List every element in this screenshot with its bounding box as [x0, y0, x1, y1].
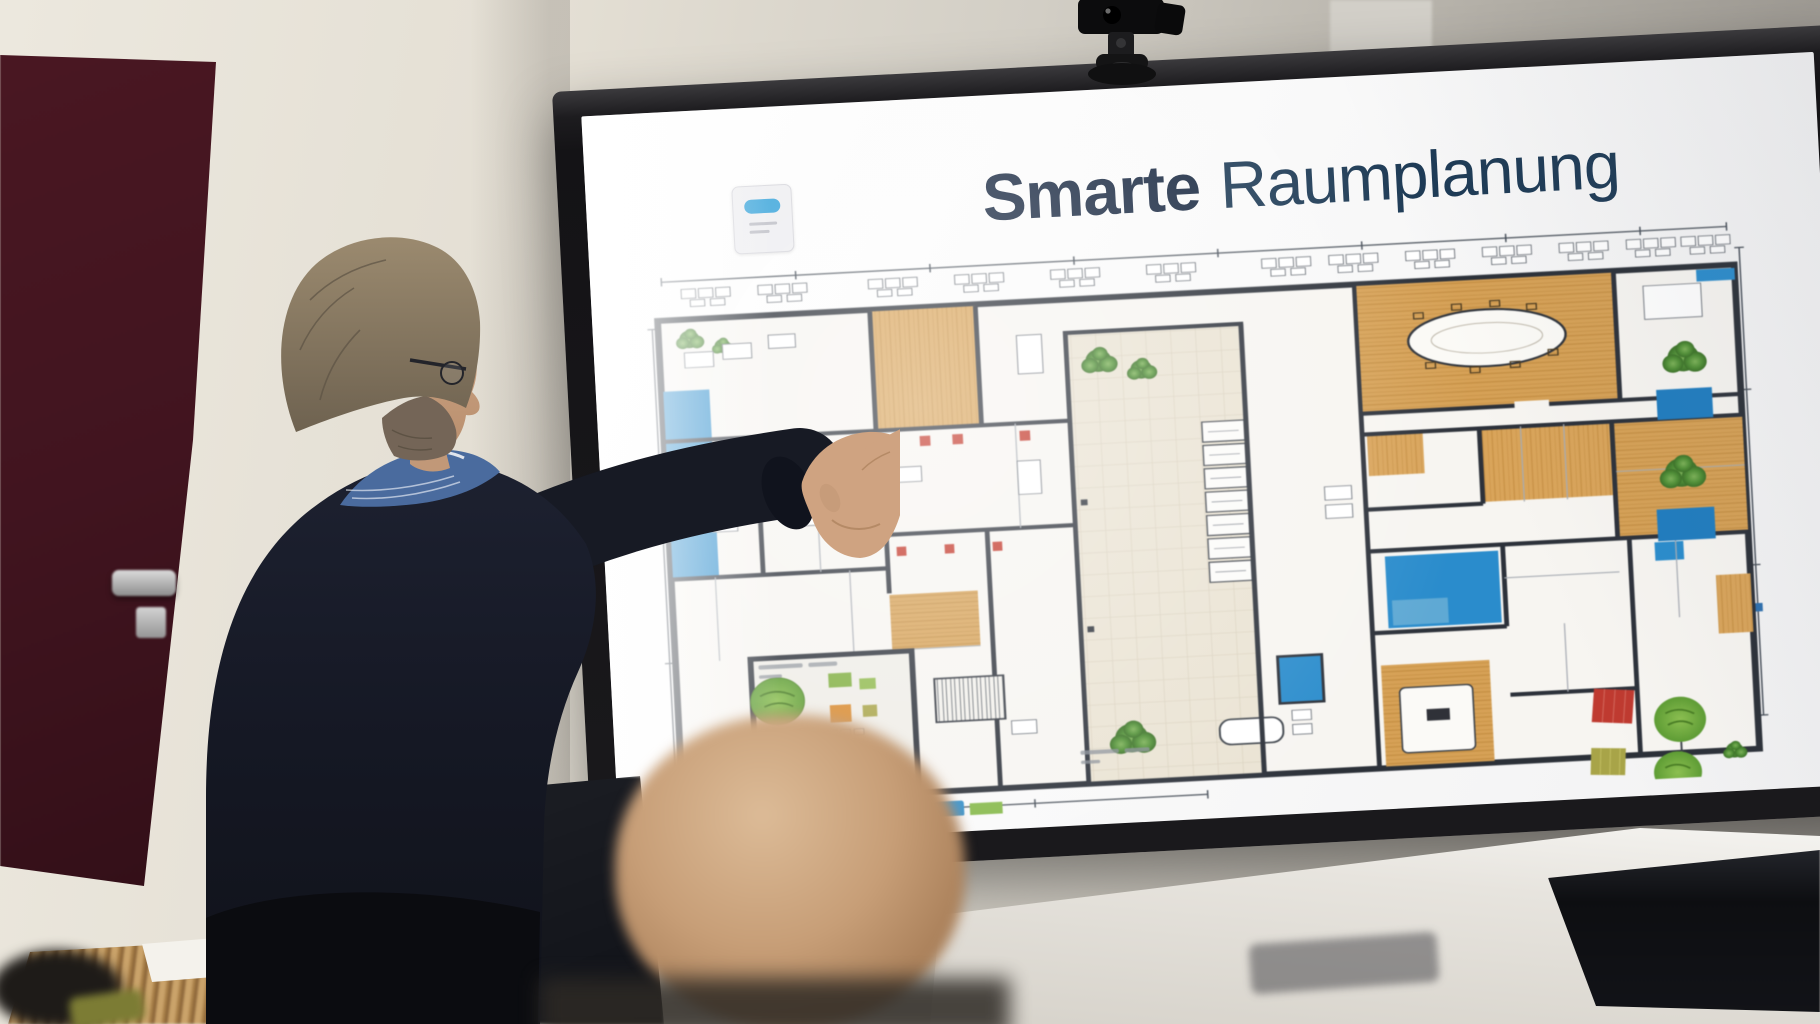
- water-strip: [1656, 387, 1713, 420]
- bathtub: [1219, 717, 1284, 745]
- presenter-trousers: [206, 892, 540, 1024]
- camera-head-icon: [1078, 0, 1164, 34]
- audience-shoulder: [540, 978, 1010, 1024]
- water-strip: [1657, 507, 1716, 542]
- stairs: [934, 675, 1005, 722]
- slide-title-bold: Smarte: [980, 149, 1201, 234]
- olive-tile: [1591, 748, 1626, 775]
- photo-scene: SmarteRaumplanung: [0, 0, 1820, 1024]
- slide-title-regular: Raumplanung: [1218, 127, 1621, 222]
- webcam: [1060, 0, 1200, 100]
- slide-title: SmarteRaumplanung: [980, 126, 1621, 235]
- red-tile: [1592, 689, 1635, 724]
- blue-room-small: [1278, 654, 1325, 703]
- wood-office: [889, 590, 980, 650]
